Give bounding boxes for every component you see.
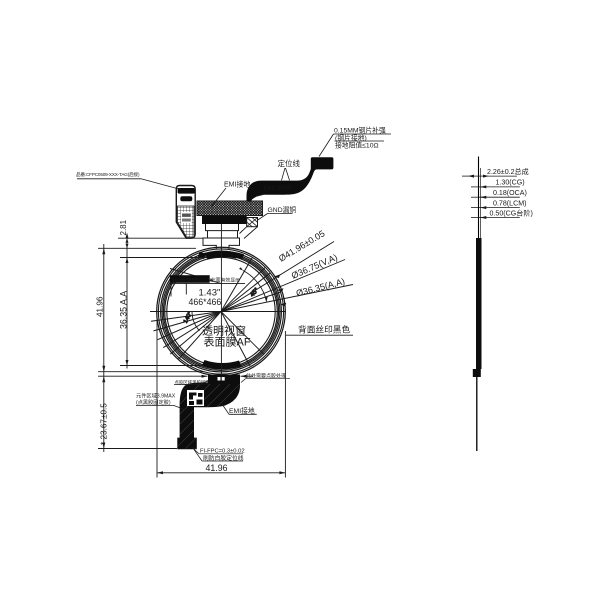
svg-text:此面有效显示: 此面有效显示: [211, 277, 240, 284]
svg-text:466*466: 466*466: [189, 297, 222, 307]
svg-text:SCAN DIRECTION: SCAN DIRECTION: [171, 277, 214, 282]
svg-text:2.26±0.2总成: 2.26±0.2总成: [487, 167, 529, 176]
svg-text:0.15MM钢片补强: 0.15MM钢片补强: [334, 126, 386, 135]
svg-text:(点黑胶固定胶): (点黑胶固定胶): [136, 398, 171, 406]
svg-text:EMI接地: EMI接地: [229, 406, 255, 415]
svg-text:元件区域3.9MAX: 元件区域3.9MAX: [136, 392, 176, 400]
svg-text:表面膜AF: 表面膜AF: [204, 335, 251, 349]
svg-text:背面丝印黑色: 背面丝印黑色: [298, 324, 350, 335]
svg-text:EMI接地: EMI接地: [224, 180, 250, 189]
svg-text:41.96: 41.96: [95, 296, 104, 317]
svg-text:GND漏铜: GND漏铜: [268, 205, 297, 214]
svg-text:透明视窗: 透明视窗: [202, 324, 246, 338]
svg-text:FPC-0509: FPC-0509: [264, 186, 292, 193]
svg-text:刷防白胶定位线: 刷防白胶定位线: [203, 454, 244, 462]
svg-text:41.96: 41.96: [206, 463, 228, 473]
svg-text:1.30(CG): 1.30(CG): [496, 179, 525, 187]
svg-text:接地阻值≤10Ω: 接地阻值≤10Ω: [335, 141, 379, 150]
svg-text:* 23.67±0.5: * 23.67±0.5: [99, 403, 108, 445]
svg-text:0.18(OCA): 0.18(OCA): [493, 189, 527, 197]
svg-text:0.78(LCM): 0.78(LCM): [493, 199, 527, 207]
svg-text:0.50(CG台阶): 0.50(CG台阶): [490, 208, 533, 217]
svg-text:品番:CFPC0509-XXX-TAG(后接): 品番:CFPC0509-XXX-TAG(后接): [76, 171, 140, 178]
svg-text:36.35 A.A: 36.35 A.A: [118, 291, 128, 329]
svg-text:定位线: 定位线: [278, 158, 301, 168]
svg-text:Ø36.35(A,A): Ø36.35(A,A): [295, 276, 346, 298]
svg-text:2.81: 2.81: [119, 219, 128, 235]
svg-text:Ø36.75(V,A): Ø36.75(V,A): [290, 252, 339, 281]
